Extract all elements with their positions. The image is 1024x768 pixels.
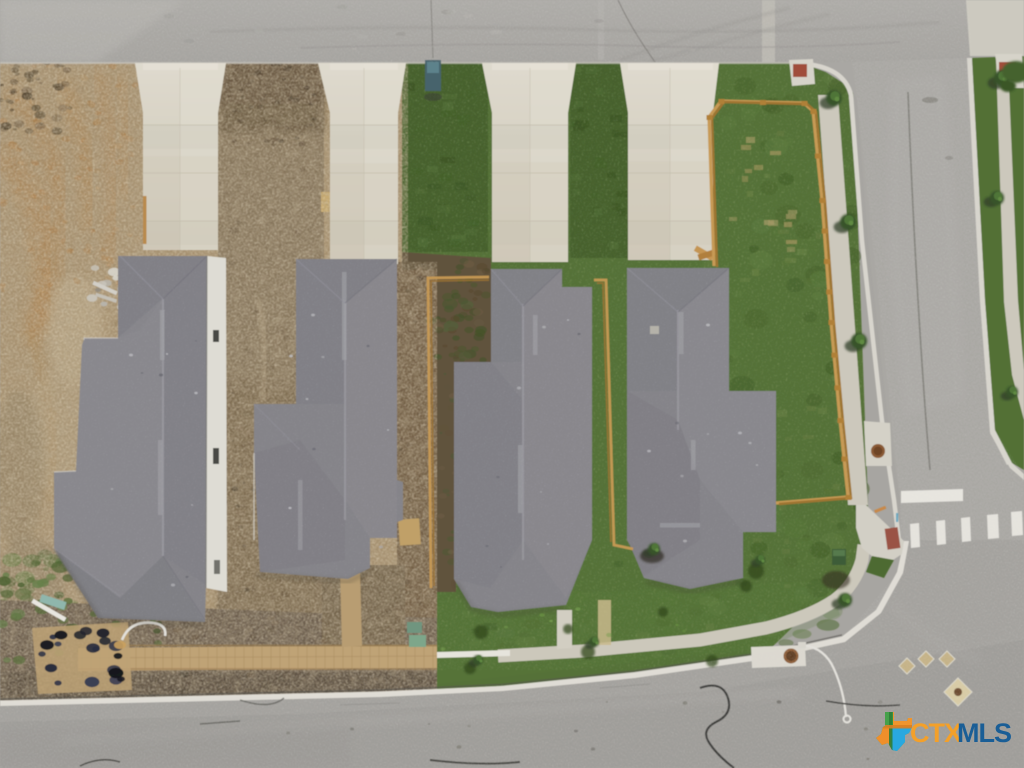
svg-text:MLS: MLS bbox=[957, 718, 1011, 748]
svg-text:CTX: CTX bbox=[910, 718, 962, 748]
